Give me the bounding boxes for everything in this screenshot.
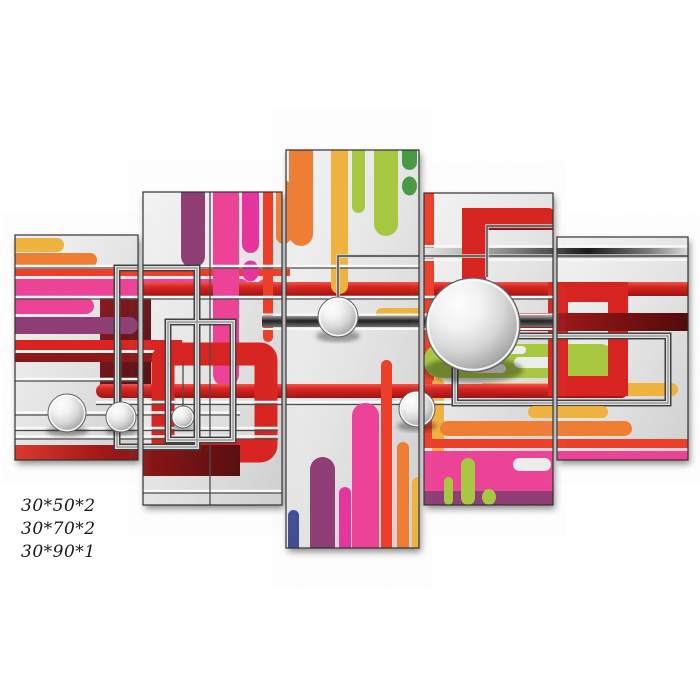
- artwork-canvas: [0, 0, 700, 700]
- size-labels: 30*50*2 30*70*2 30*90*1: [21, 495, 96, 564]
- product-photo-stage: 30*50*2 30*70*2 30*90*1: [0, 0, 700, 700]
- size-label-3: 30*90*1: [21, 541, 96, 564]
- size-label-1: 30*50*2: [21, 495, 96, 518]
- canvas-grain: [15, 150, 688, 548]
- size-label-2: 30*70*2: [21, 518, 96, 541]
